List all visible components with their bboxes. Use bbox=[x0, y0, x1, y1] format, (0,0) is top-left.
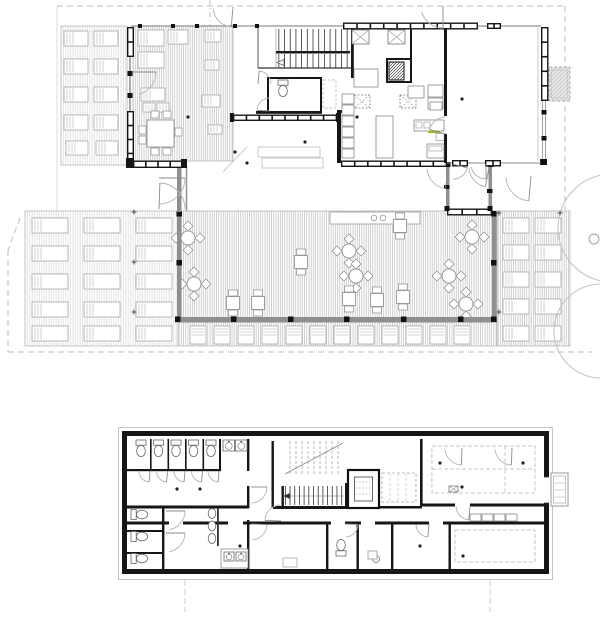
toilet-tank bbox=[336, 551, 346, 556]
wall bbox=[267, 77, 269, 113]
swing-arc bbox=[252, 525, 267, 540]
ground-floor-plan bbox=[8, 0, 600, 378]
buffet-sink bbox=[380, 215, 386, 221]
washbasin-oval bbox=[208, 509, 216, 519]
square-table bbox=[295, 256, 308, 269]
window-pane bbox=[171, 162, 182, 167]
lift-platform-fill bbox=[549, 67, 570, 101]
door-leaf bbox=[461, 448, 462, 465]
window-pane bbox=[356, 162, 368, 166]
window-pane bbox=[247, 116, 258, 120]
window-pane bbox=[234, 116, 245, 120]
window-pane bbox=[542, 43, 547, 56]
toilet-bowl bbox=[172, 445, 181, 456]
lounger bbox=[84, 274, 120, 289]
window-pane bbox=[382, 162, 394, 166]
door-swing bbox=[251, 524, 267, 540]
lounger bbox=[136, 218, 172, 233]
property-line bbox=[8, 218, 20, 250]
door-swing bbox=[506, 176, 531, 201]
chair bbox=[139, 136, 146, 144]
window-pane bbox=[542, 72, 547, 85]
lounger bbox=[535, 218, 561, 233]
corridor-wall bbox=[489, 167, 493, 209]
ext-wall bbox=[544, 503, 549, 574]
lounger bbox=[94, 31, 118, 46]
chair bbox=[163, 148, 171, 155]
lounger bbox=[205, 30, 221, 42]
lounger bbox=[238, 326, 254, 344]
kitchen-unit bbox=[342, 94, 354, 104]
chair bbox=[151, 111, 159, 118]
lounger bbox=[535, 272, 561, 287]
column-marker bbox=[186, 115, 189, 118]
door-swings bbox=[139, 448, 512, 552]
lounger bbox=[136, 302, 172, 317]
window-pane bbox=[299, 116, 310, 120]
wall bbox=[256, 111, 322, 114]
lounger bbox=[535, 326, 561, 341]
swing-arc bbox=[346, 525, 358, 538]
swing-arc bbox=[506, 177, 529, 201]
window-band bbox=[133, 161, 183, 169]
lounger bbox=[64, 87, 88, 102]
lounger bbox=[136, 246, 172, 261]
prep-table bbox=[354, 69, 378, 87]
door-leaf bbox=[251, 524, 267, 525]
door-swing bbox=[471, 164, 486, 179]
toilet bbox=[189, 440, 199, 457]
wall bbox=[449, 522, 451, 570]
toilet bbox=[206, 440, 216, 457]
lounger-body bbox=[32, 218, 68, 233]
column-marker bbox=[238, 544, 241, 547]
canopy-post bbox=[491, 260, 497, 266]
door-swing bbox=[208, 471, 219, 482]
swing-arc bbox=[445, 450, 461, 466]
sink bbox=[430, 102, 442, 110]
chair bbox=[254, 290, 263, 296]
kitchen-fixtures bbox=[278, 30, 444, 158]
window-band bbox=[341, 161, 447, 168]
partitions bbox=[127, 439, 544, 570]
lounger-body bbox=[503, 218, 529, 233]
column-marker bbox=[521, 461, 524, 464]
window-pane bbox=[159, 162, 170, 167]
lounger-body bbox=[84, 274, 120, 289]
facade-post bbox=[195, 24, 199, 28]
lounger-body bbox=[138, 30, 164, 46]
lounger bbox=[406, 326, 422, 344]
table-set bbox=[252, 290, 265, 316]
facade-post bbox=[233, 24, 237, 28]
window-pane bbox=[358, 24, 370, 28]
toilet-bowl bbox=[136, 532, 147, 541]
swing-arc bbox=[495, 450, 511, 466]
canopy-edge bbox=[177, 211, 182, 322]
chair bbox=[297, 269, 306, 275]
wall-corner bbox=[126, 158, 134, 168]
toilet bbox=[131, 532, 148, 542]
window-pane bbox=[465, 24, 477, 28]
door-swing bbox=[157, 471, 168, 482]
window-pane bbox=[324, 116, 335, 120]
swing-arc bbox=[169, 533, 185, 552]
column-marker bbox=[460, 97, 463, 100]
canopy-post bbox=[177, 260, 183, 266]
equipment bbox=[449, 486, 458, 492]
lounger-body bbox=[136, 274, 172, 289]
glazing-post bbox=[542, 110, 547, 115]
lounger-body bbox=[32, 274, 68, 289]
window-pane bbox=[421, 162, 433, 166]
washbasin-oval bbox=[208, 521, 216, 531]
lounger bbox=[454, 326, 470, 344]
round-table bbox=[187, 277, 201, 291]
round-table bbox=[342, 244, 356, 258]
chair bbox=[229, 310, 238, 316]
swing-arc bbox=[208, 471, 218, 482]
swing-arc bbox=[213, 9, 231, 27]
window-pane bbox=[451, 24, 463, 28]
ceiling-dashed bbox=[432, 446, 535, 493]
toilet-tank bbox=[171, 440, 181, 445]
lounger bbox=[84, 246, 120, 261]
lift-platform bbox=[549, 67, 570, 101]
lounger bbox=[66, 141, 88, 155]
wall bbox=[379, 506, 422, 509]
wall bbox=[391, 522, 393, 570]
tap bbox=[228, 553, 230, 555]
window-pane bbox=[398, 24, 410, 28]
stair-rail bbox=[276, 51, 350, 54]
column-marker bbox=[355, 115, 358, 118]
lounger bbox=[141, 88, 165, 101]
equipment-dashed bbox=[354, 95, 370, 108]
chair bbox=[151, 148, 159, 155]
wall bbox=[272, 441, 274, 508]
square-table bbox=[394, 220, 407, 233]
window-pane bbox=[542, 58, 547, 71]
toilet-tank bbox=[131, 510, 136, 520]
door-leaf bbox=[265, 520, 281, 521]
basement-floor-plan bbox=[119, 428, 569, 613]
window-pane bbox=[542, 28, 547, 41]
swing-arc bbox=[259, 71, 271, 84]
ext-wall bbox=[122, 569, 549, 574]
column-marker bbox=[198, 487, 201, 490]
lounger bbox=[334, 326, 350, 344]
window-band bbox=[541, 27, 549, 101]
toilet-tank bbox=[136, 440, 146, 445]
lounger-body bbox=[96, 141, 118, 155]
toilet-tank bbox=[206, 440, 216, 445]
lounger bbox=[94, 59, 118, 74]
table-set bbox=[295, 249, 308, 275]
window-band bbox=[487, 23, 501, 29]
lounger bbox=[430, 326, 446, 344]
window-pane bbox=[344, 24, 356, 28]
square-table bbox=[343, 293, 356, 306]
lounger bbox=[535, 299, 561, 314]
door-swing bbox=[427, 167, 449, 189]
lounger bbox=[96, 141, 118, 155]
round-table bbox=[465, 230, 479, 244]
washbasin-oval bbox=[208, 534, 216, 544]
fixture bbox=[283, 558, 297, 567]
door-swing bbox=[166, 533, 185, 552]
glazing-post bbox=[542, 136, 547, 141]
window-pane bbox=[542, 87, 547, 100]
toilet bbox=[336, 539, 346, 556]
tap bbox=[240, 441, 242, 443]
lounger bbox=[202, 95, 220, 107]
chair bbox=[373, 307, 382, 313]
window-pane bbox=[342, 162, 354, 166]
lounger-body bbox=[64, 115, 88, 130]
floor-plan-sheet bbox=[0, 0, 600, 617]
window-pane bbox=[312, 116, 323, 120]
counter-item bbox=[424, 122, 430, 128]
square-table bbox=[227, 297, 240, 310]
door-swing bbox=[416, 524, 429, 537]
kitchen-unit bbox=[342, 105, 354, 115]
sink-wall bbox=[217, 508, 219, 546]
stall-wall bbox=[150, 439, 152, 469]
stove bbox=[408, 86, 424, 98]
toilet bbox=[154, 440, 164, 457]
round-table bbox=[181, 231, 195, 245]
window-band bbox=[233, 115, 337, 122]
lounger bbox=[64, 31, 88, 46]
round-table bbox=[349, 269, 363, 283]
window-pane bbox=[128, 126, 132, 138]
window-pane bbox=[134, 162, 145, 167]
column-marker bbox=[460, 485, 463, 488]
lounger bbox=[32, 246, 68, 261]
wall bbox=[470, 504, 544, 507]
chair bbox=[254, 310, 263, 316]
wall bbox=[267, 77, 322, 79]
kitchen-unit bbox=[342, 149, 354, 158]
column-marker bbox=[438, 461, 441, 464]
stair-treads bbox=[285, 486, 341, 505]
chair bbox=[345, 286, 354, 292]
swing-arc bbox=[456, 507, 469, 520]
corridor-wall bbox=[177, 166, 182, 212]
toilet-bowl bbox=[136, 510, 147, 519]
toilet-tank bbox=[131, 532, 136, 542]
lounger bbox=[503, 299, 529, 314]
ramp-step bbox=[258, 147, 320, 157]
stair-treads bbox=[279, 29, 347, 51]
floor-plan-drawing bbox=[0, 0, 600, 617]
window-pane bbox=[434, 162, 446, 166]
lounger-body bbox=[141, 88, 165, 101]
table-set bbox=[397, 284, 410, 310]
storage-dashed bbox=[455, 530, 535, 562]
door-leaf bbox=[149, 471, 150, 482]
chair bbox=[396, 213, 405, 219]
lounger bbox=[136, 326, 172, 341]
lounger-body bbox=[84, 302, 120, 317]
swing-arc bbox=[453, 168, 468, 179]
toilet-tank bbox=[189, 440, 199, 445]
lounger bbox=[138, 52, 164, 68]
window-pane bbox=[395, 162, 407, 166]
chair bbox=[163, 111, 171, 118]
table-set bbox=[343, 286, 356, 312]
lounger bbox=[136, 274, 172, 289]
lounger bbox=[168, 30, 188, 44]
wall bbox=[422, 504, 455, 507]
stair-arrow bbox=[277, 60, 284, 66]
facade-post bbox=[138, 24, 142, 28]
stair-elevator bbox=[283, 441, 379, 508]
wall-post bbox=[181, 159, 187, 168]
toilet-bowl bbox=[207, 445, 216, 456]
swing-arc bbox=[427, 169, 445, 189]
window-pane bbox=[369, 162, 381, 166]
kitchen-unit bbox=[342, 127, 354, 137]
window-pane bbox=[486, 161, 492, 165]
lounger-body bbox=[136, 246, 172, 261]
lounger bbox=[503, 326, 529, 341]
door-leaf bbox=[529, 176, 531, 201]
glass-front bbox=[447, 209, 492, 216]
tap bbox=[240, 553, 242, 555]
canopy-edge bbox=[175, 317, 497, 323]
lounger-body bbox=[136, 326, 172, 341]
window-pane bbox=[463, 210, 476, 214]
lounger bbox=[84, 326, 120, 341]
lounger-body bbox=[503, 245, 529, 260]
lounger bbox=[32, 218, 68, 233]
tree-trunk bbox=[589, 234, 599, 244]
counter-item bbox=[436, 134, 444, 141]
wall bbox=[127, 506, 249, 509]
door-leaf bbox=[428, 524, 429, 537]
door-leaf bbox=[167, 471, 168, 482]
radiator bbox=[470, 514, 481, 521]
lounger bbox=[94, 87, 118, 102]
canopy-post bbox=[458, 317, 464, 323]
canopy-post bbox=[344, 317, 350, 323]
lounger bbox=[503, 245, 529, 260]
wall-post bbox=[230, 113, 234, 122]
ramp-step bbox=[262, 158, 323, 168]
toilet bbox=[171, 440, 181, 457]
wall bbox=[444, 28, 447, 116]
door-leaf bbox=[159, 183, 160, 209]
lounger-body bbox=[535, 299, 561, 314]
lounger bbox=[214, 326, 230, 344]
facade-post bbox=[171, 24, 175, 28]
swing-arc bbox=[469, 169, 485, 187]
toilet bbox=[131, 510, 148, 520]
lounger-body bbox=[32, 302, 68, 317]
lounger-body bbox=[208, 125, 222, 134]
window-band bbox=[127, 27, 134, 57]
canopy-post bbox=[175, 317, 181, 323]
door-swing bbox=[456, 506, 470, 520]
window-pane bbox=[385, 24, 397, 28]
chair bbox=[399, 304, 408, 310]
window-pane bbox=[286, 116, 297, 120]
wall bbox=[444, 134, 447, 163]
door-leaf bbox=[258, 71, 259, 84]
toilet-bowl bbox=[136, 554, 147, 563]
square-table bbox=[252, 297, 265, 310]
window-pane bbox=[488, 24, 493, 27]
wall bbox=[337, 120, 341, 163]
washbasin bbox=[224, 552, 234, 561]
canopy-post bbox=[231, 317, 237, 323]
window-pane bbox=[260, 116, 271, 120]
stove bbox=[428, 85, 443, 97]
wall bbox=[443, 522, 544, 525]
lounger-body bbox=[138, 52, 164, 68]
wall bbox=[410, 28, 412, 83]
ext-wall bbox=[544, 431, 549, 477]
duct-shaft-fill bbox=[389, 62, 404, 80]
lounger-body bbox=[66, 141, 88, 155]
window-pane bbox=[128, 28, 132, 41]
door-swing bbox=[345, 524, 358, 537]
radiator bbox=[506, 514, 517, 521]
door-leaf bbox=[231, 7, 233, 27]
stall-wall bbox=[203, 439, 205, 469]
big-table bbox=[147, 120, 174, 147]
lounger-body bbox=[64, 87, 88, 102]
lounger bbox=[138, 30, 164, 46]
window-pane bbox=[128, 112, 132, 124]
lounger bbox=[208, 125, 222, 134]
lounger-body bbox=[136, 218, 172, 233]
wall bbox=[162, 508, 164, 570]
facade-post bbox=[128, 93, 133, 98]
wall bbox=[386, 81, 412, 83]
toilet-bowl bbox=[337, 539, 346, 550]
wall bbox=[326, 522, 328, 570]
lounger-body bbox=[94, 59, 118, 74]
interior-walls bbox=[256, 28, 538, 163]
canopy-post bbox=[491, 317, 497, 323]
facade-post bbox=[128, 71, 133, 76]
lounger bbox=[64, 59, 88, 74]
wall bbox=[420, 439, 423, 506]
door-swing bbox=[445, 448, 462, 465]
buffet-sink bbox=[371, 215, 377, 221]
door-leaf bbox=[202, 471, 203, 482]
lounger-body bbox=[84, 218, 120, 233]
swing-arc bbox=[416, 525, 428, 538]
lounger bbox=[64, 115, 88, 130]
toilet-tank bbox=[154, 440, 164, 445]
door-swing bbox=[495, 448, 512, 465]
corridor-post bbox=[445, 206, 450, 211]
lounger-body bbox=[535, 245, 561, 260]
lounger bbox=[94, 115, 118, 130]
shelving-dashed bbox=[382, 473, 416, 502]
lounger bbox=[84, 218, 120, 233]
lounger bbox=[503, 218, 529, 233]
lounger-body bbox=[94, 31, 118, 46]
window-pane bbox=[495, 24, 500, 27]
window-pane bbox=[128, 140, 132, 152]
window-pane bbox=[461, 161, 467, 165]
dumbwaiter bbox=[388, 30, 405, 44]
